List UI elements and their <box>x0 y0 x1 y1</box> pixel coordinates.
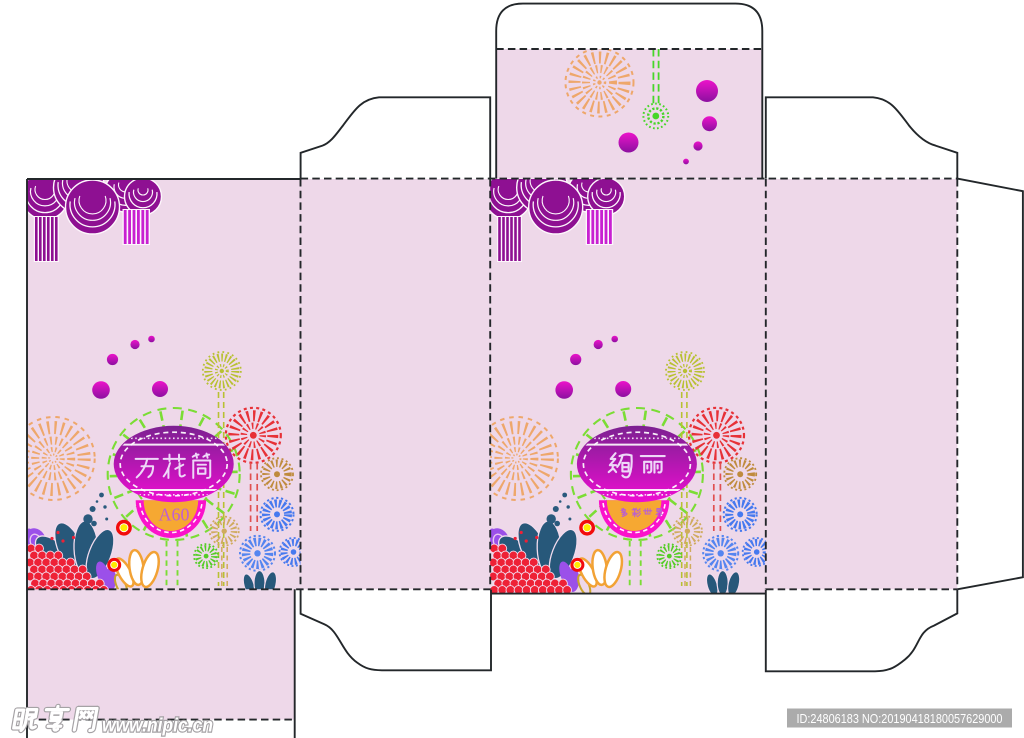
svg-text:www.nipic.cn: www.nipic.cn <box>102 716 213 737</box>
svg-text:A60: A60 <box>159 505 190 525</box>
svg-text:ID:24806183 NO:201904181800576: ID:24806183 NO:20190418180057629000 <box>797 711 1003 726</box>
